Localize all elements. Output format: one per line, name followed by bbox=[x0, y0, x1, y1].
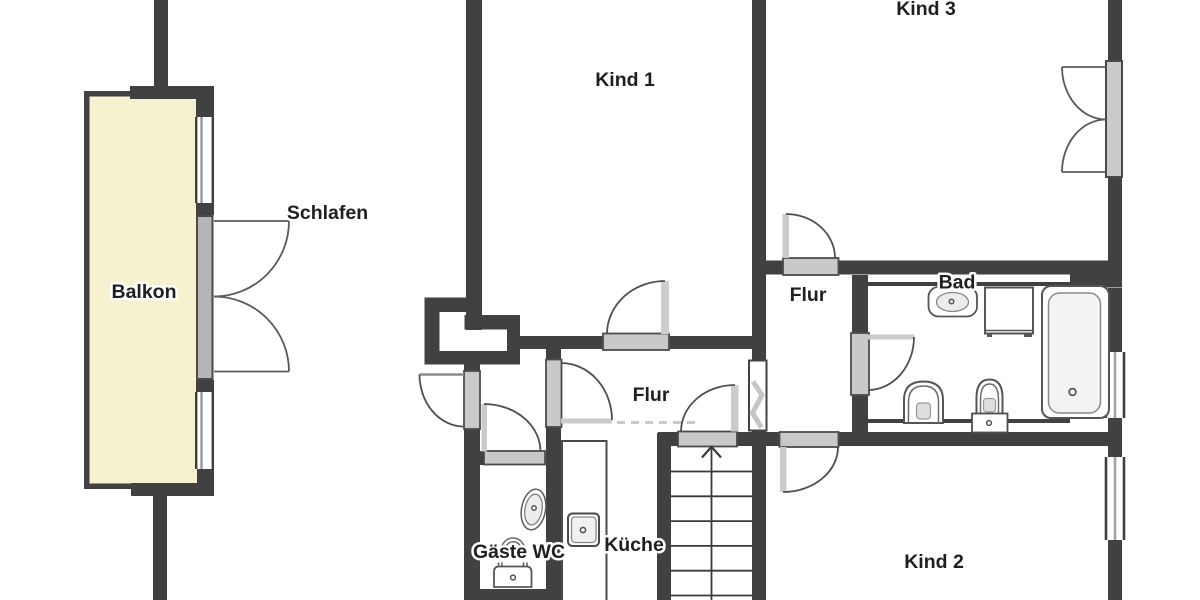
svg-text:Kind 1: Kind 1 bbox=[595, 69, 655, 91]
svg-text:Bad: Bad bbox=[939, 272, 976, 294]
svg-text:Kind 2: Kind 2 bbox=[904, 551, 964, 573]
svg-text:Gäste WC: Gäste WC bbox=[473, 541, 565, 563]
svg-text:Schlafen: Schlafen bbox=[287, 202, 368, 224]
svg-text:Flur: Flur bbox=[633, 384, 670, 406]
svg-text:Küche: Küche bbox=[604, 534, 664, 556]
svg-text:Balkon: Balkon bbox=[111, 281, 176, 303]
svg-text:Kind 3: Kind 3 bbox=[896, 0, 956, 20]
svg-text:Flur: Flur bbox=[790, 284, 827, 306]
